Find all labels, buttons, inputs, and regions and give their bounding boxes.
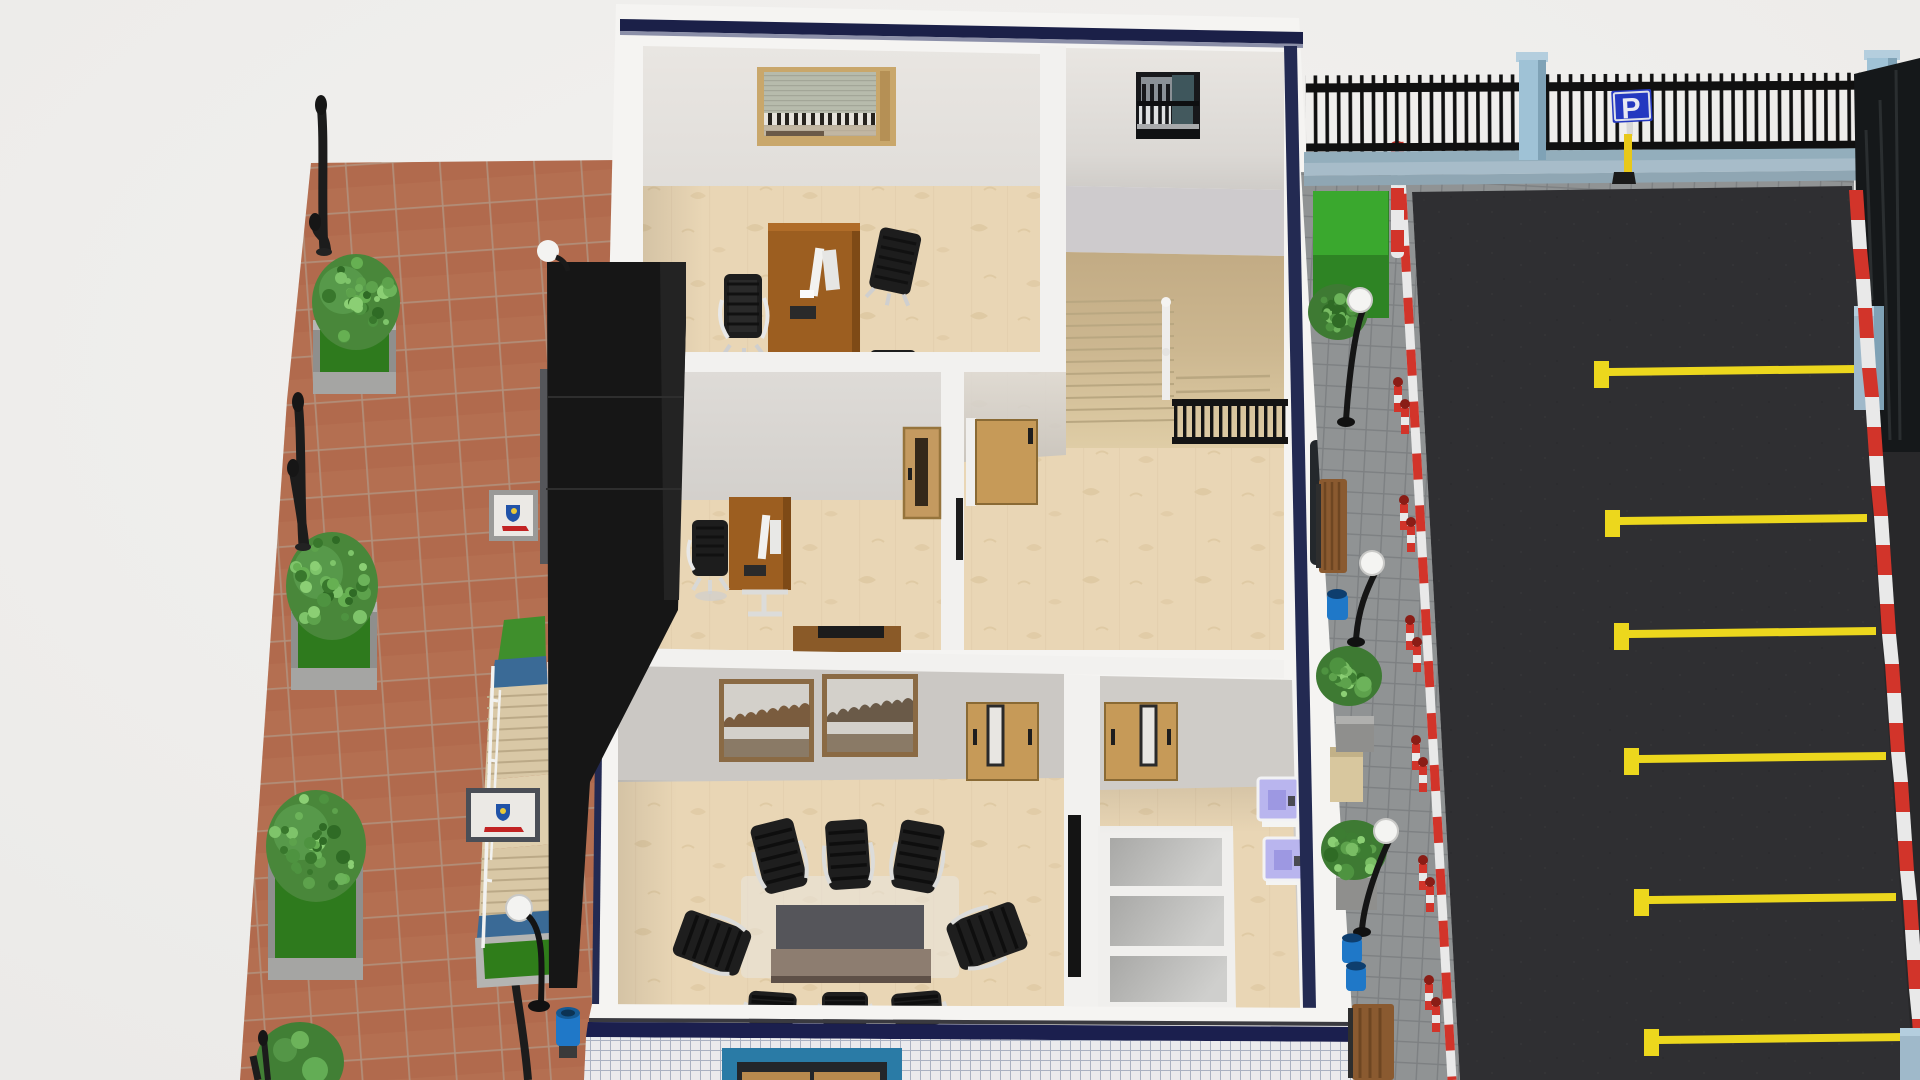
svg-text:P: P xyxy=(1621,93,1642,126)
